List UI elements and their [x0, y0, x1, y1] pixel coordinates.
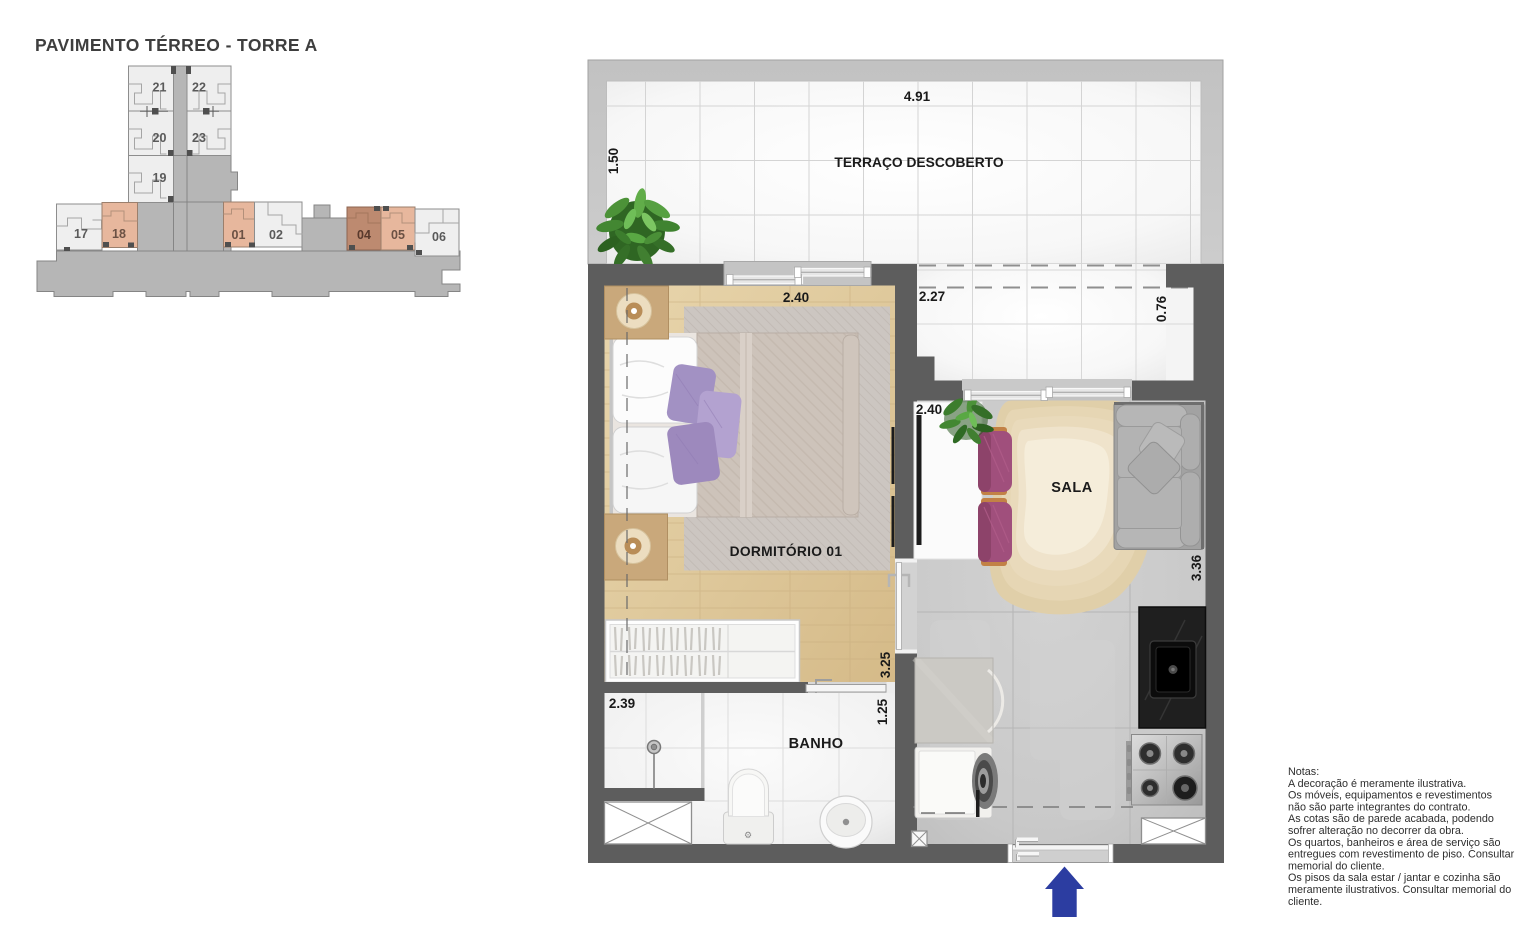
- svg-text:2.39: 2.39: [609, 696, 635, 711]
- svg-text:04: 04: [357, 228, 371, 242]
- svg-text:06: 06: [432, 230, 446, 244]
- svg-text:17: 17: [74, 227, 88, 241]
- svg-text:20: 20: [153, 131, 167, 145]
- svg-text:Os pisos da sala estar / janta: Os pisos da sala estar / jantar e cozinh…: [1288, 872, 1500, 884]
- svg-text:2.27: 2.27: [919, 289, 945, 304]
- svg-text:⚙: ⚙: [744, 830, 752, 840]
- svg-text:19: 19: [153, 171, 167, 185]
- svg-text:SALA: SALA: [1051, 480, 1093, 496]
- svg-text:Os quartos, banheiros e área d: Os quartos, banheiros e área de serviço …: [1288, 837, 1500, 849]
- svg-text:3.36: 3.36: [1189, 554, 1204, 581]
- svg-text:entregues com revestimento de: entregues com revestimento de piso. Cons…: [1288, 849, 1515, 861]
- svg-text:22: 22: [192, 81, 206, 95]
- svg-text:memorial do cliente.: memorial do cliente.: [1288, 860, 1385, 872]
- svg-text:23: 23: [192, 131, 206, 145]
- svg-text:4.91: 4.91: [904, 89, 931, 104]
- svg-text:1.50: 1.50: [606, 148, 621, 174]
- svg-text:Os móveis, equipamentos e reve: Os móveis, equipamentos e revestimentos: [1288, 790, 1493, 802]
- svg-text:02: 02: [269, 228, 283, 242]
- svg-text:não são parte integrantes do c: não são parte integrantes do contrato.: [1288, 801, 1470, 813]
- svg-text:01: 01: [232, 228, 246, 242]
- svg-text:As cotas são de parede acabada: As cotas são de parede acabada, podendo: [1288, 813, 1494, 825]
- svg-text:2.40: 2.40: [783, 290, 809, 305]
- svg-text:meramente ilustrativos. Consul: meramente ilustrativos. Consultar memori…: [1288, 884, 1511, 896]
- svg-text:BANHO: BANHO: [789, 736, 844, 752]
- svg-text:sofrer alteração no decorrer d: sofrer alteração no decorrer da obra.: [1288, 825, 1464, 837]
- svg-text:05: 05: [391, 228, 405, 242]
- svg-text:3.25: 3.25: [878, 651, 893, 678]
- svg-text:18: 18: [112, 227, 126, 241]
- svg-text:A decoração é meramente ilustr: A decoração é meramente ilustrativa.: [1288, 778, 1466, 790]
- svg-text:PAVIMENTO TÉRREO - TORRE A: PAVIMENTO TÉRREO - TORRE A: [35, 34, 318, 55]
- svg-text:0.76: 0.76: [1154, 295, 1169, 322]
- svg-text:cliente.: cliente.: [1288, 896, 1322, 908]
- svg-text:TERRAÇO DESCOBERTO: TERRAÇO DESCOBERTO: [834, 155, 1003, 170]
- svg-text:DORMITÓRIO 01: DORMITÓRIO 01: [730, 542, 843, 559]
- svg-text:21: 21: [153, 81, 167, 95]
- svg-text:1.25: 1.25: [875, 698, 890, 725]
- svg-text:2.40: 2.40: [916, 402, 942, 417]
- svg-text:Notas:: Notas:: [1288, 766, 1319, 778]
